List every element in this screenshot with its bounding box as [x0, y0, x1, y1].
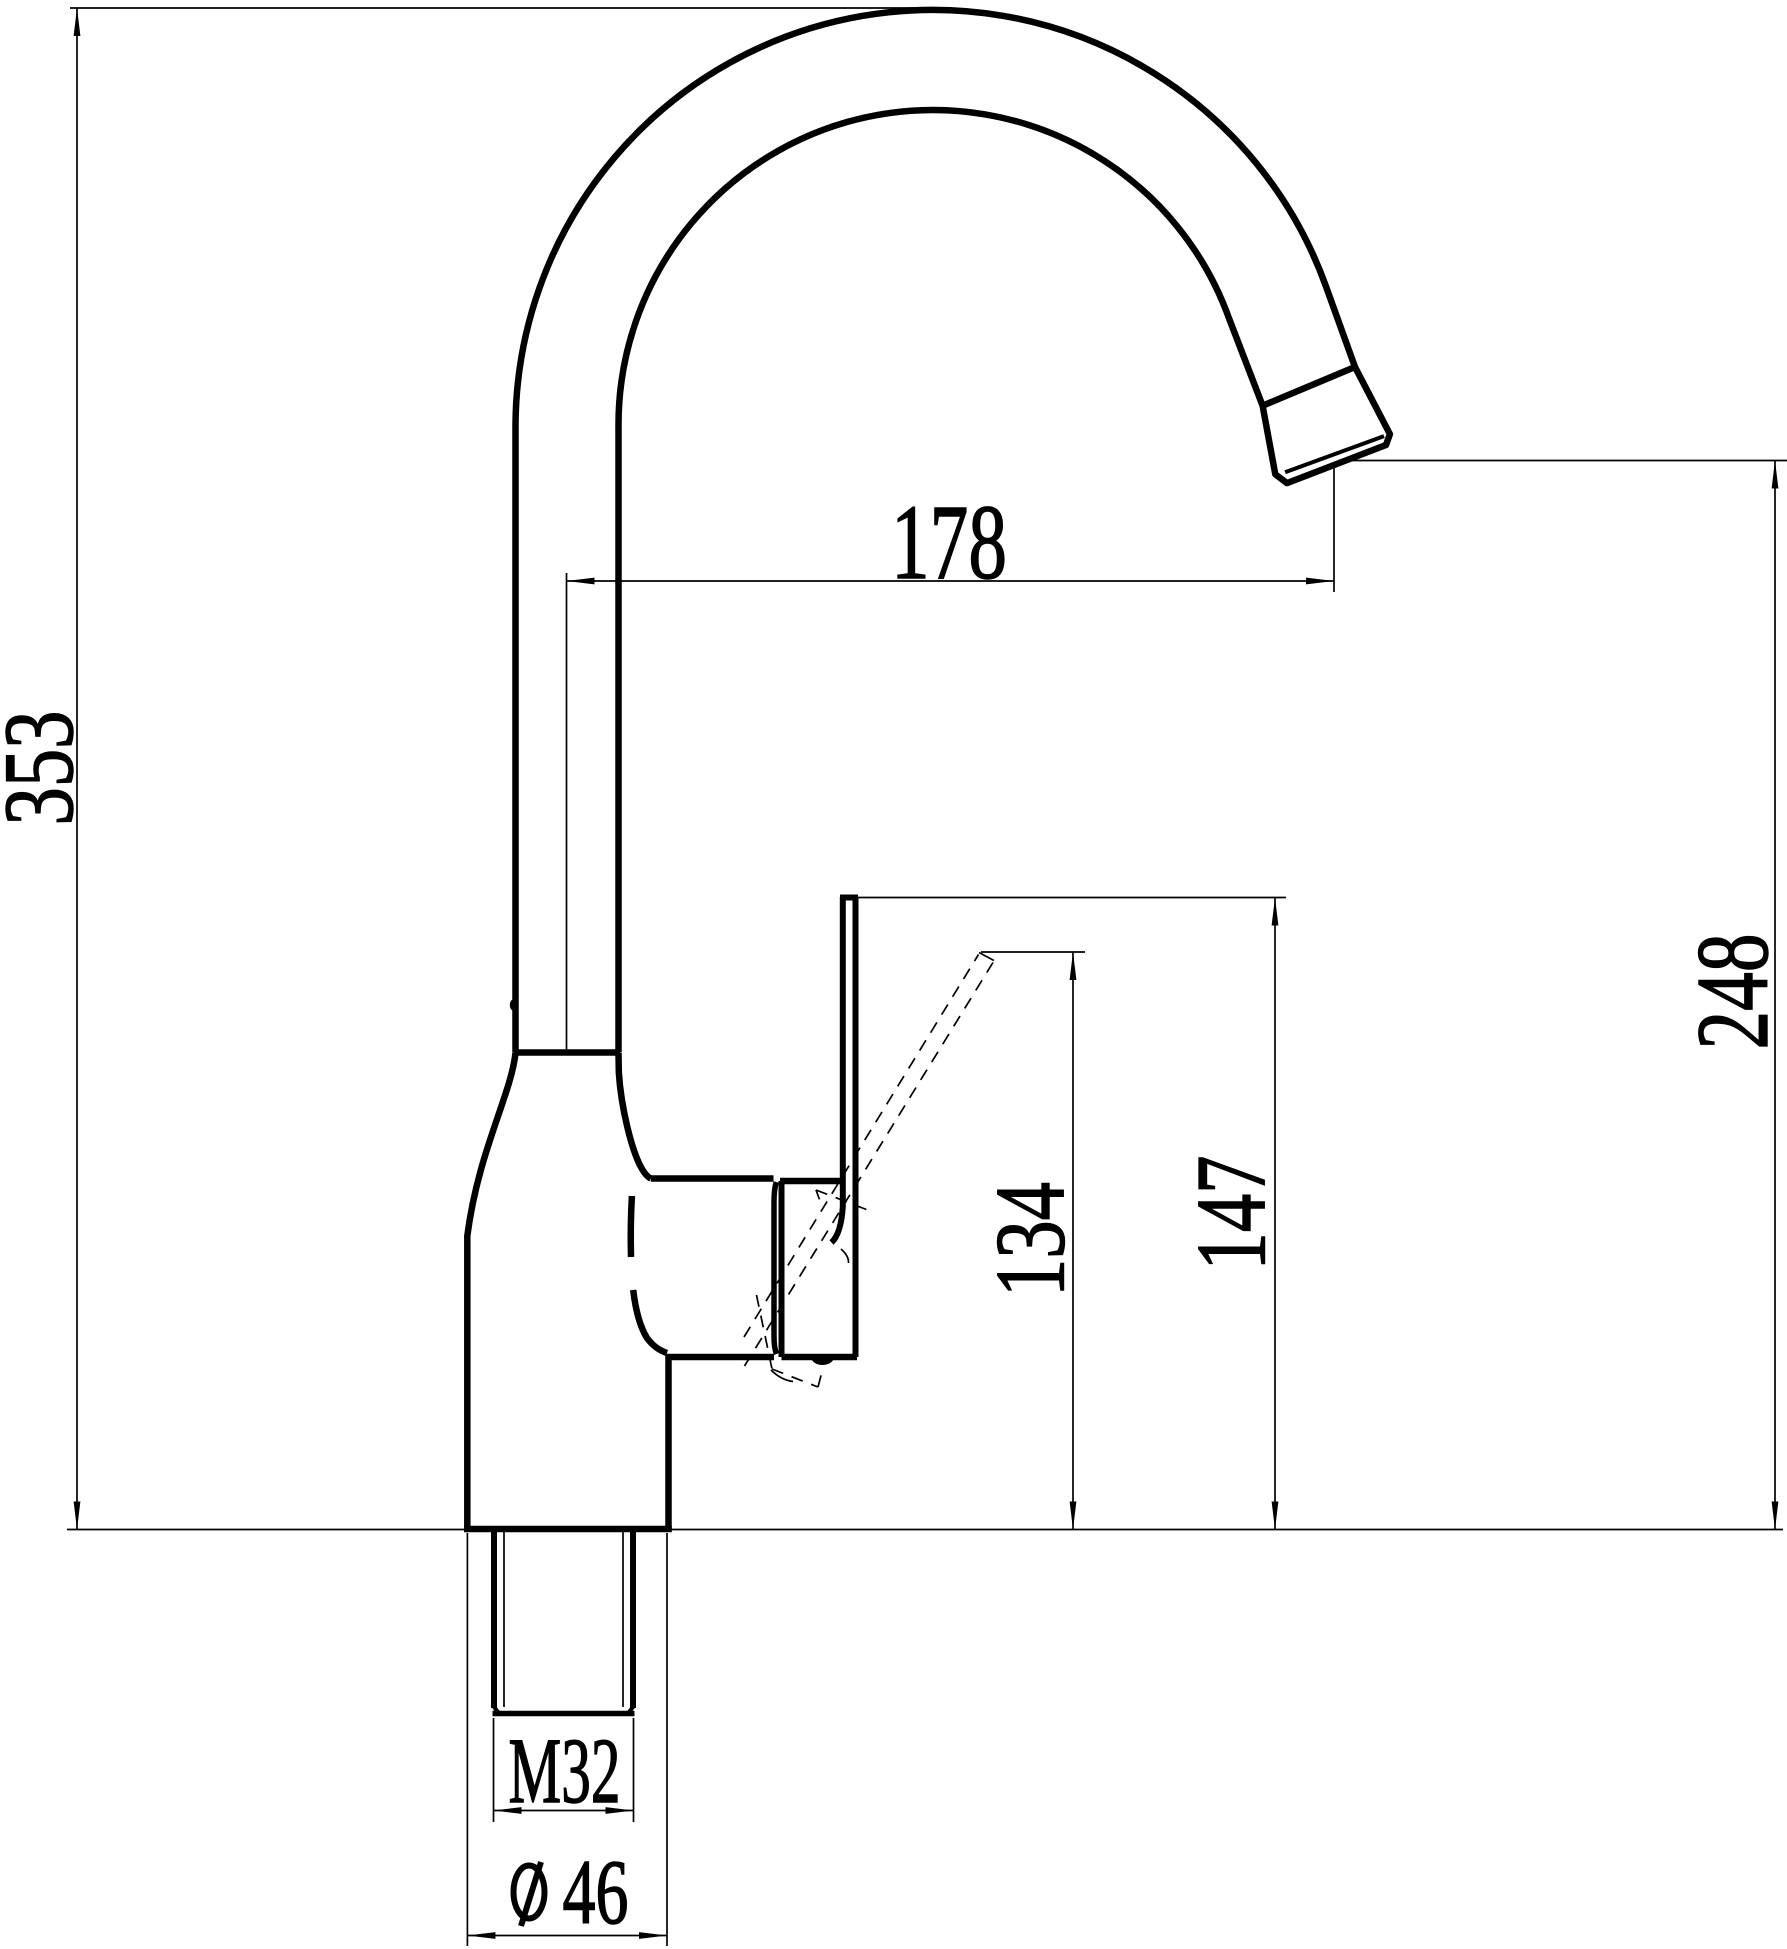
svg-text:134: 134	[975, 1182, 1086, 1297]
svg-text:46: 46	[563, 1841, 629, 1943]
svg-text:147: 147	[1176, 1156, 1287, 1271]
svg-text:248: 248	[1676, 934, 1787, 1050]
svg-text:178: 178	[891, 484, 1007, 602]
svg-text:353: 353	[0, 711, 94, 826]
svg-text:M32: M32	[509, 1720, 621, 1823]
